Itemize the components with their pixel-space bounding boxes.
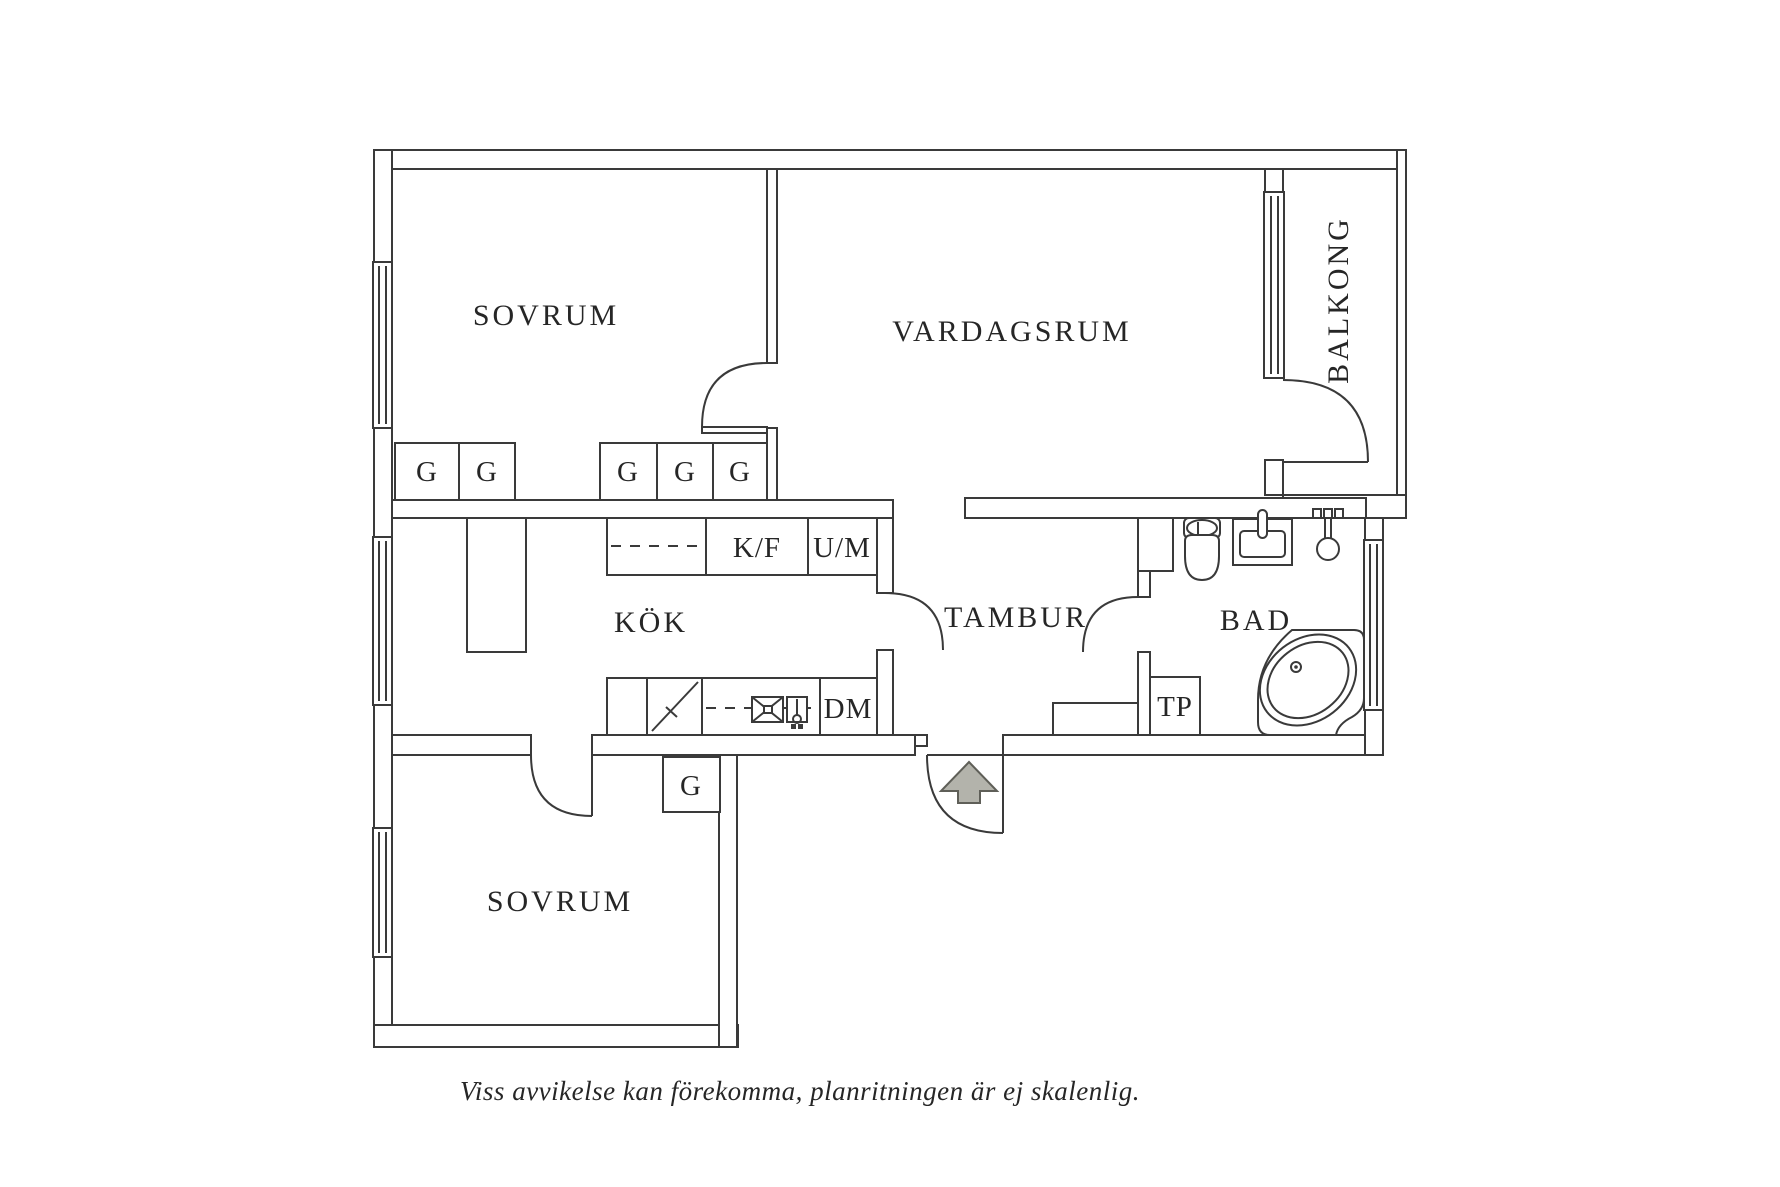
disclaimer-caption: Viss avvikelse kan förekomma, planritnin… [460, 1076, 1140, 1106]
window-icon [1364, 540, 1383, 710]
wardrobe-label: G [416, 456, 438, 488]
towel-dryer-label: TP [1157, 691, 1193, 723]
door-swing-icon [531, 755, 592, 816]
wall [767, 428, 777, 500]
kitchen-counter-bottom: DM [607, 678, 877, 735]
wardrobe-box: G [663, 757, 720, 812]
room-label-bathroom: BAD [1220, 604, 1292, 637]
wall [767, 169, 777, 363]
room-label-balcony: BALKONG [1322, 216, 1355, 384]
wardrobe-box: G [657, 443, 713, 500]
wall [374, 150, 1406, 169]
wall [1138, 652, 1150, 735]
washbasin-icon [1233, 510, 1292, 565]
kitchen-counter-top: K/F U/M [607, 518, 877, 575]
wall [592, 735, 915, 755]
door-swing-icon [1083, 597, 1138, 652]
room-labels: SOVRUM VARDAGSRUM BALKONG KÖK TAMBUR BAD… [473, 216, 1355, 918]
wardrobes: G G G G G G [395, 443, 767, 812]
kitchen-cabinet [467, 518, 526, 652]
floor-plan-page: G G G G G G K/F [0, 0, 1780, 1187]
wall [877, 518, 893, 593]
wardrobe-label: G [674, 456, 696, 488]
wardrobe-label: G [680, 770, 702, 802]
wall [392, 735, 531, 755]
room-label-living-room: VARDAGSRUM [892, 315, 1132, 348]
door-swing-icon [702, 363, 767, 433]
wall [1003, 735, 1382, 755]
wall [915, 735, 927, 746]
fridge-freezer-label: K/F [733, 532, 781, 564]
room-label-bedroom-top: SOVRUM [473, 299, 619, 332]
wall [1138, 571, 1150, 597]
door-swing-icon [1283, 380, 1368, 462]
wardrobe-box: G [395, 443, 459, 500]
toilet-icon [1184, 518, 1220, 580]
wall [1265, 169, 1283, 194]
wall [1265, 460, 1283, 495]
wall [719, 755, 737, 1047]
wardrobe-label: G [476, 456, 498, 488]
room-label-kitchen: KÖK [614, 606, 688, 639]
entrance-arrow-icon [941, 762, 997, 803]
doors [531, 363, 1368, 833]
wall [965, 498, 1366, 518]
wardrobe-box: G [600, 443, 657, 500]
wardrobe-label: G [617, 456, 639, 488]
shower-icon [1313, 509, 1343, 560]
wardrobe-label: G [729, 456, 751, 488]
towel-dryer-box: TP [1150, 677, 1200, 735]
room-label-bedroom-bottom: SOVRUM [487, 885, 633, 918]
window-icon [373, 537, 392, 705]
window-icon [1264, 192, 1284, 378]
wall [877, 650, 893, 735]
washing-machine-label: U/M [813, 532, 871, 564]
wall [1138, 518, 1173, 571]
wall [1397, 150, 1406, 500]
door-swing-icon [885, 593, 943, 650]
window-icon [373, 828, 392, 957]
hall-bench [1053, 703, 1138, 735]
room-label-hall: TAMBUR [944, 601, 1088, 634]
floor-plan: G G G G G G K/F [0, 0, 1780, 1187]
window-icon [373, 262, 392, 428]
wardrobe-box: G [713, 443, 767, 500]
dishwasher-label: DM [824, 693, 873, 725]
wall [374, 1025, 738, 1047]
wardrobe-box: G [459, 443, 515, 500]
stove-icon [752, 697, 783, 722]
wall [392, 500, 893, 518]
